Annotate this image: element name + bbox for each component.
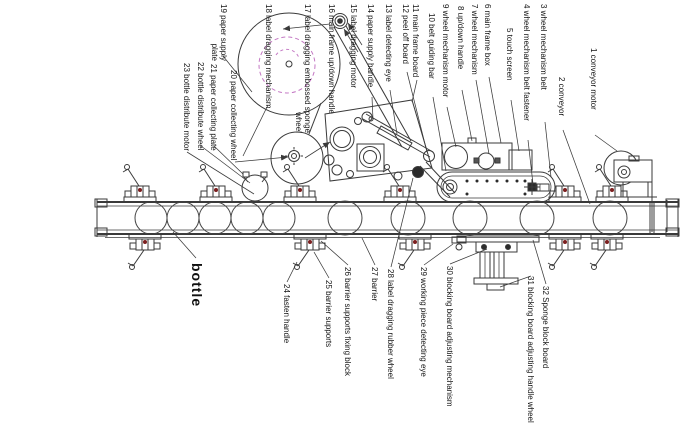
- motor-box: [357, 144, 384, 171]
- conveyor-left-bracket: [95, 199, 107, 237]
- leader-line: [450, 249, 487, 264]
- leader-line: [321, 241, 348, 265]
- conveyor: [95, 199, 679, 238]
- part-label-30: 30 blocking board adjusting mechanism: [445, 266, 454, 407]
- bottle-circle: [231, 202, 263, 234]
- bottle-circle: [199, 202, 231, 234]
- part-label-14: 14 paper supply handle: [366, 4, 375, 87]
- part-label-19: 19 paper supplyplate: [210, 4, 228, 61]
- conveyor-right-bracket: [650, 199, 679, 237]
- leader-line: [391, 178, 413, 267]
- leader-line: [433, 97, 446, 171]
- leader-line: [595, 135, 617, 151]
- part-label-20: 20 paper collecting wheel: [229, 70, 238, 160]
- leader-line: [243, 105, 268, 156]
- part-label-13: 13 label detecting eye: [384, 4, 393, 82]
- belt-bolts: [466, 180, 527, 196]
- part-label-29: 29 working piece detecting eye: [419, 267, 428, 377]
- conveyor-motor: [604, 151, 667, 232]
- leader-line: [462, 90, 472, 141]
- part-label-15: 15 label dragging motor: [349, 4, 358, 88]
- part-label-23: 23 bottle distribute motor: [182, 63, 191, 151]
- part-label-24: 24 fasten handle: [282, 284, 291, 343]
- part-label-28: 28 label dragging rubber wheel: [386, 269, 395, 379]
- bottle-label: bottle: [189, 263, 204, 307]
- part-label-21: 21 paper collecting plate: [209, 64, 218, 151]
- leader-line: [287, 262, 297, 282]
- part-label-5: 5 touch screen: [505, 28, 514, 80]
- labeling-machine-diagram: 1 conveyor motor2 conveyor3 wheel mechan…: [0, 0, 680, 433]
- part-label-16: 16 main frame up/down handle: [327, 4, 336, 114]
- label-head-mechanism: [309, 100, 455, 197]
- part-label-3: 3 wheel mechanism belt: [539, 4, 548, 90]
- part-label-9: 9 wheel mechanism motor: [441, 4, 450, 97]
- part-label-25: 25 barrier supports: [324, 280, 333, 347]
- part-label-8: 8 up/down handle: [456, 6, 465, 69]
- leader-line: [235, 157, 288, 162]
- leader-line: [447, 107, 456, 147]
- leader-line: [314, 252, 329, 278]
- part-label-27: 27 barrier: [370, 267, 379, 301]
- part-label-7: 7 wheel mechanism: [470, 4, 479, 75]
- leader-line: [563, 130, 590, 204]
- part-label-22: 22 bottle distribute wheel: [196, 62, 205, 151]
- bottle-circle: [167, 202, 199, 234]
- part-label-31: 31 blocking board adjusting handle wheel: [526, 276, 535, 423]
- leader-line: [412, 80, 417, 102]
- part-label-32: 32 Sponge block board: [541, 286, 550, 368]
- part-label-12: 12 peel off board: [401, 4, 410, 64]
- working-piece-detecting-eye: [452, 237, 466, 250]
- sponge-block-board: [457, 236, 539, 242]
- leader-line: [489, 77, 501, 143]
- leader-line: [362, 238, 375, 265]
- leader-line: [201, 146, 250, 183]
- part-label-2: 2 conveyor: [557, 77, 566, 116]
- wheel-mechanism: [478, 153, 494, 169]
- leader-line: [173, 232, 196, 258]
- bottle-circle: [263, 202, 295, 234]
- adjusting-handle-wheel: [487, 284, 504, 290]
- wheel-mechanism-belt: [437, 172, 555, 202]
- wheel-mechanism-motor: [445, 146, 468, 169]
- part-label-11: 11 main frame board: [411, 4, 420, 77]
- belt-fastener: [524, 179, 549, 195]
- part-label-10: 10 belt guiding bar: [427, 13, 436, 79]
- part-label-1: 1 conveyor motor: [589, 48, 598, 110]
- part-label-17: 17 label dragging embossed spongewheel: [294, 4, 312, 133]
- part-label-6: 6 main frame box: [483, 4, 492, 66]
- leader-line: [545, 122, 551, 177]
- leader-line: [187, 152, 254, 194]
- bottle-distribute-wheel: [242, 172, 268, 201]
- part-label-4: 4 wheel mechanism belt fastener: [522, 4, 531, 121]
- part-label-18: 18 label dragging mechanism: [264, 4, 273, 109]
- machine-drawing: [0, 0, 680, 433]
- part-label-26: 26 barrier supports fixing block: [343, 267, 352, 376]
- leader-line: [424, 244, 453, 265]
- bottle-circle: [135, 202, 167, 234]
